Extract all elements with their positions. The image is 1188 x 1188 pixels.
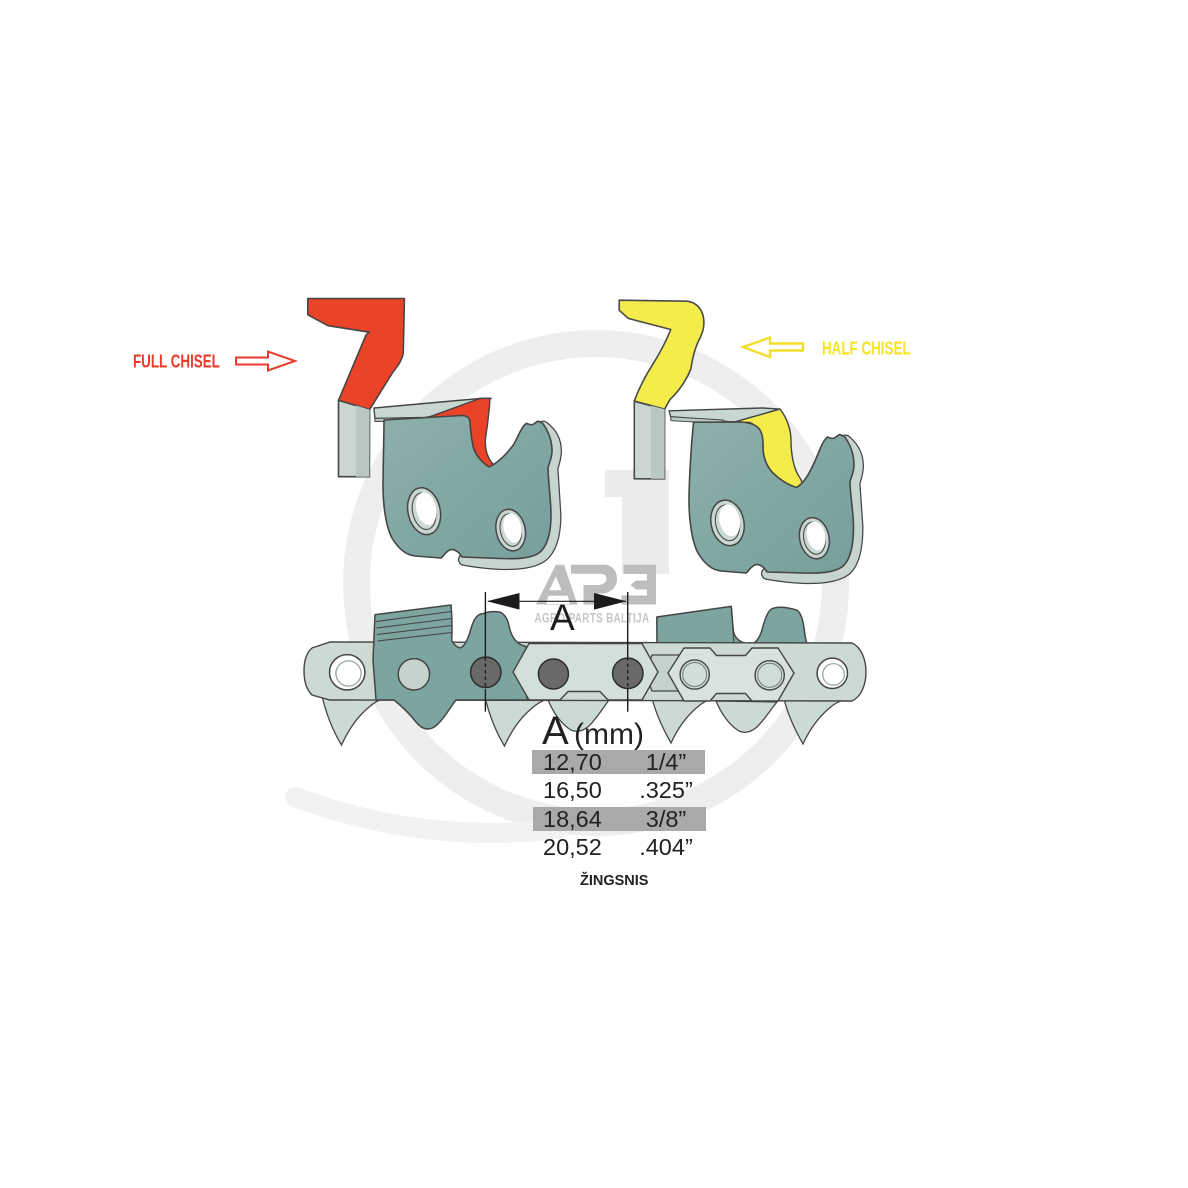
svg-text:(mm): (mm): [574, 718, 644, 751]
svg-text:3/8”: 3/8”: [646, 806, 687, 832]
svg-text:20,52: 20,52: [543, 834, 602, 860]
svg-text:A: A: [542, 709, 569, 753]
svg-text:.325”: .325”: [639, 777, 693, 803]
svg-text:1/4”: 1/4”: [646, 749, 687, 775]
svg-text:18,64: 18,64: [543, 806, 602, 832]
svg-text:A: A: [550, 597, 575, 638]
svg-text:HALF CHISEL: HALF CHISEL: [822, 340, 911, 359]
svg-text:12,70: 12,70: [543, 749, 602, 775]
svg-text:ŽINGSNIS: ŽINGSNIS: [580, 871, 649, 889]
svg-text:FULL CHISEL: FULL CHISEL: [133, 353, 220, 372]
svg-text:16,50: 16,50: [543, 777, 602, 803]
svg-text:.404”: .404”: [639, 834, 693, 860]
